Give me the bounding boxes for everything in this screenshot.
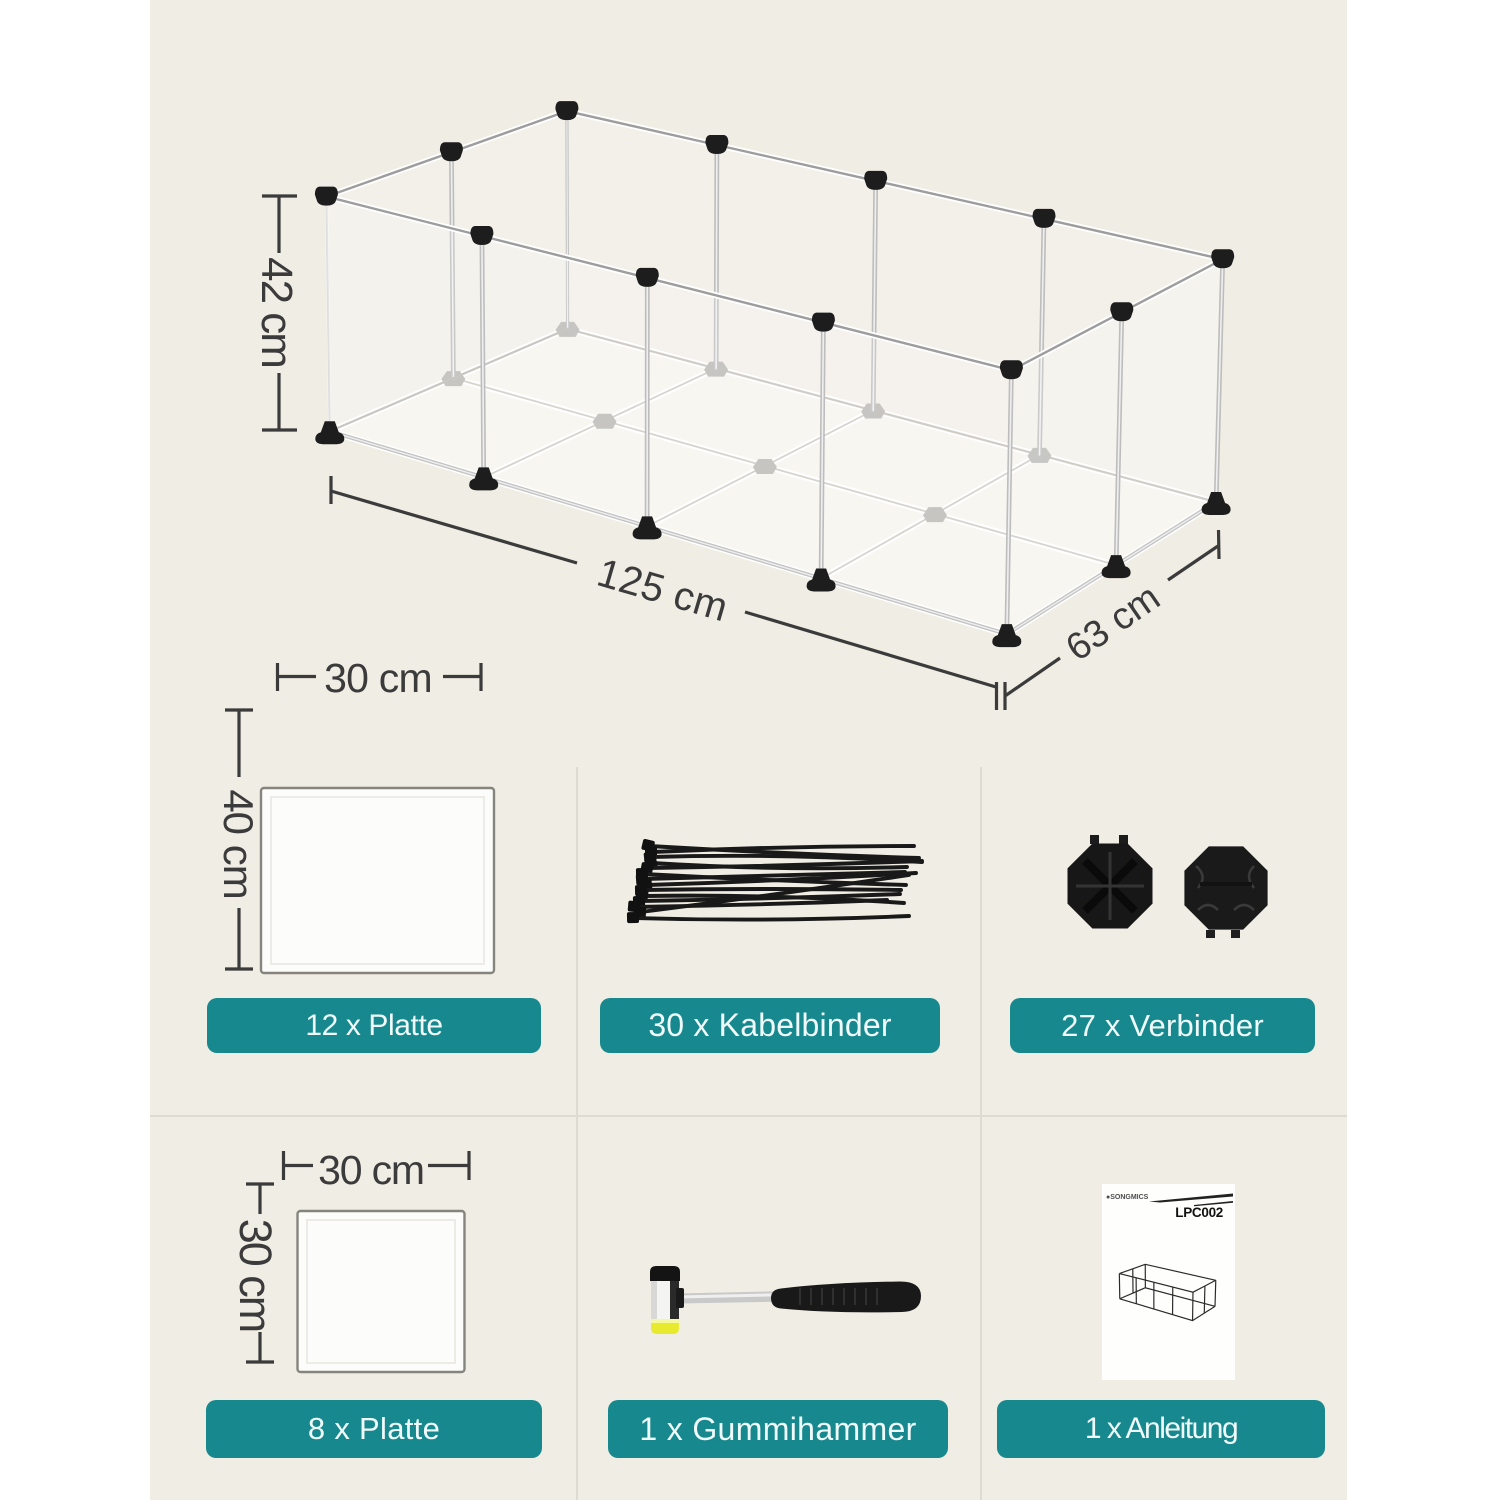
svg-text:125 cm: 125 cm: [592, 551, 733, 631]
svg-text:30 cm: 30 cm: [230, 1219, 281, 1332]
svg-text:LPC002: LPC002: [1175, 1205, 1223, 1220]
svg-text:42 cm: 42 cm: [252, 257, 301, 367]
svg-text:40 cm: 40 cm: [215, 789, 262, 898]
svg-text:30 cm: 30 cm: [318, 1147, 424, 1193]
svg-text:30 cm: 30 cm: [324, 655, 432, 701]
svg-text:●SONGMICS: ●SONGMICS: [1106, 1194, 1149, 1201]
